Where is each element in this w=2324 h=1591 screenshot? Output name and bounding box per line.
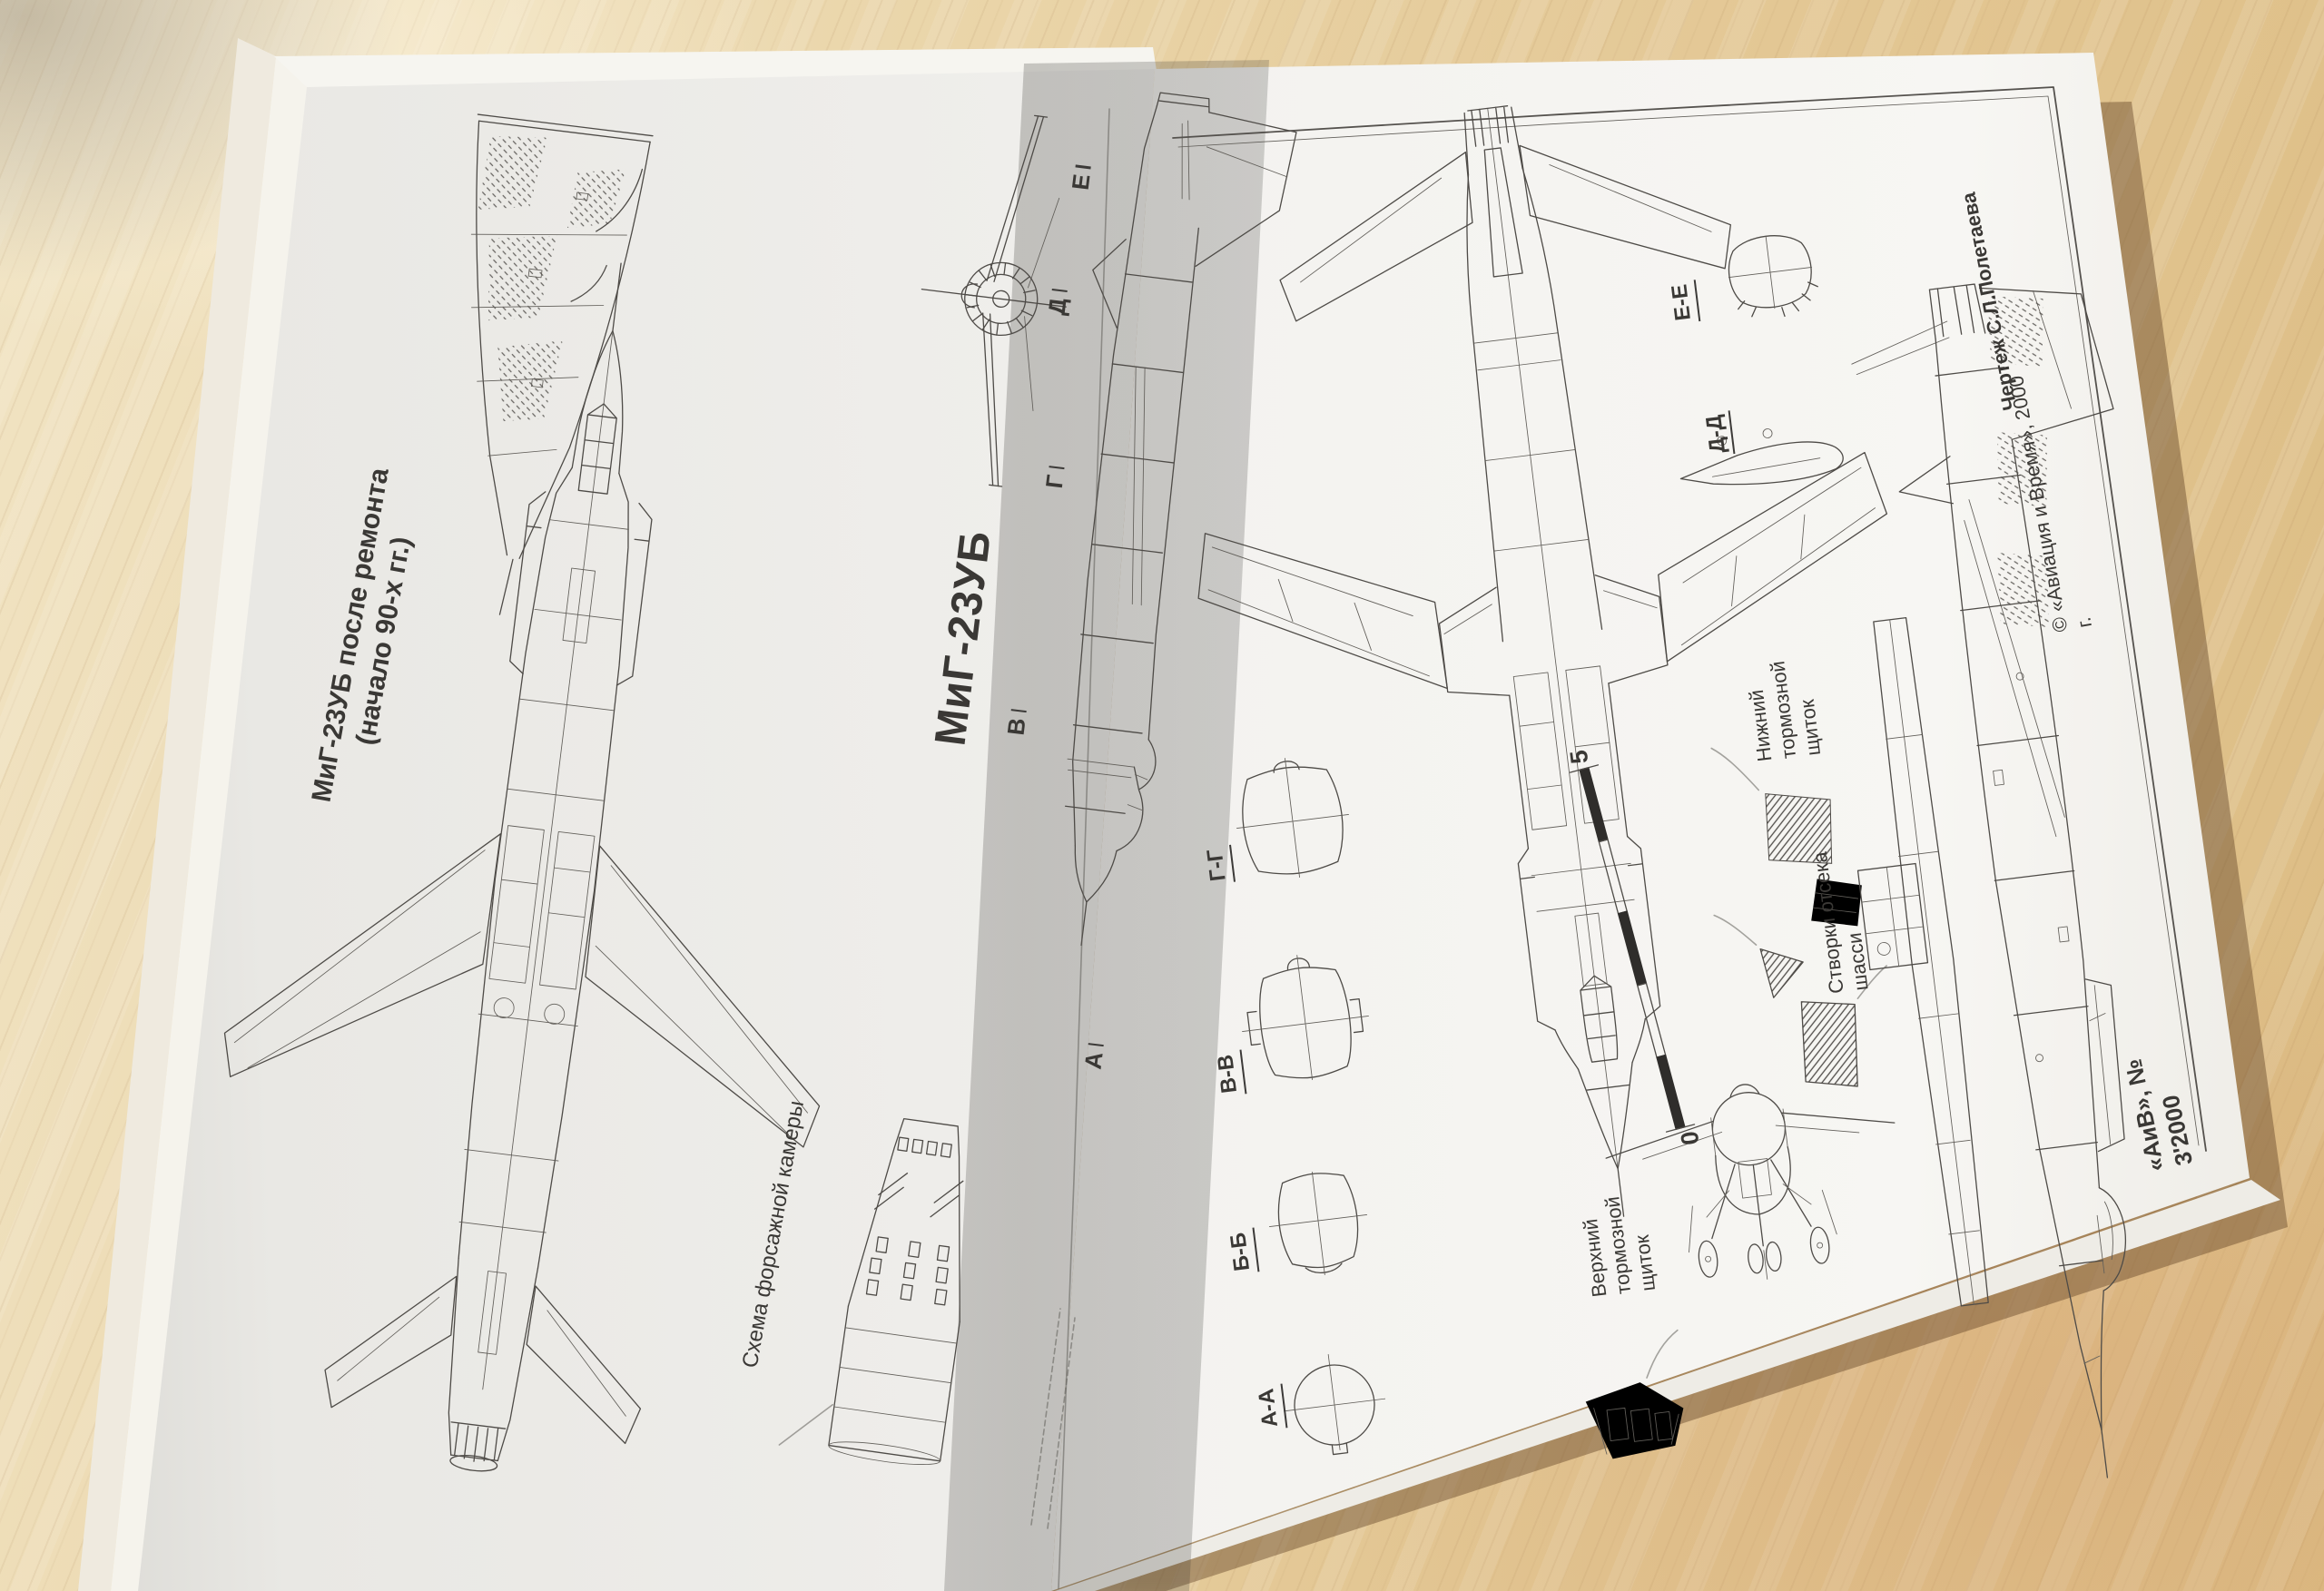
cross-section-vv-drawing (1234, 948, 1375, 1087)
section-marker-g: Г (1040, 465, 1071, 490)
section-marker-label: Е (1067, 172, 1098, 192)
mig23-plan-view-drawing (175, 227, 918, 1507)
section-label: В-В (1213, 1050, 1247, 1097)
side-view-drawing-left-page (1011, 87, 1299, 959)
section-label: Д-Д (1701, 410, 1736, 457)
section-label-dd: Д-Д (1674, 411, 1732, 461)
cross-section-aa-drawing (1278, 1349, 1392, 1460)
section-label: Г-Г (1202, 845, 1236, 886)
gear-door-detail (1714, 905, 1807, 1003)
section-label-gg: Г-Г (1175, 845, 1232, 889)
cross-section-ee-drawing (1724, 231, 1820, 322)
section-marker-v: В (1002, 708, 1034, 737)
scale-bar (1570, 765, 1694, 1132)
afterburner-detail-drawing (779, 1108, 987, 1469)
cross-section-bb-drawing (1264, 1166, 1374, 1281)
section-marker-d: Д (1043, 288, 1075, 317)
section-label: Б-Б (1226, 1228, 1260, 1275)
page-crease (1059, 109, 1109, 1588)
auxiliary-fuselage-view (1870, 617, 1995, 1307)
section-marker-a: А (1079, 1042, 1111, 1071)
section-marker-label: В (1002, 716, 1033, 737)
section-label: А-А (1254, 1384, 1288, 1431)
section-label: Е-Е (1667, 280, 1700, 325)
upper-airbrake-detail (1579, 1331, 1692, 1461)
callout-upper-airbrake: Верхний тормозной щиток (1576, 1192, 1660, 1298)
section-marker-e: Е (1067, 164, 1098, 192)
section-label-vv: В-В (1186, 1050, 1244, 1100)
section-label-aa: А-А (1226, 1384, 1285, 1434)
callout-lower-airbrake: Нижний тормозной щиток (1741, 656, 1826, 762)
cross-section-gg-drawing (1229, 751, 1355, 884)
photo-of-open-magazine: МиГ-23УБ после ремонта (начало 90-х гг.)… (0, 0, 2324, 1591)
section-marker-label: Д (1043, 297, 1074, 317)
section-label-ee: Е-Е (1640, 280, 1698, 329)
section-marker-label: А (1079, 1050, 1110, 1071)
section-label-bb: Б-Б (1198, 1228, 1256, 1278)
nose-section-detail-drawing (418, 114, 653, 626)
